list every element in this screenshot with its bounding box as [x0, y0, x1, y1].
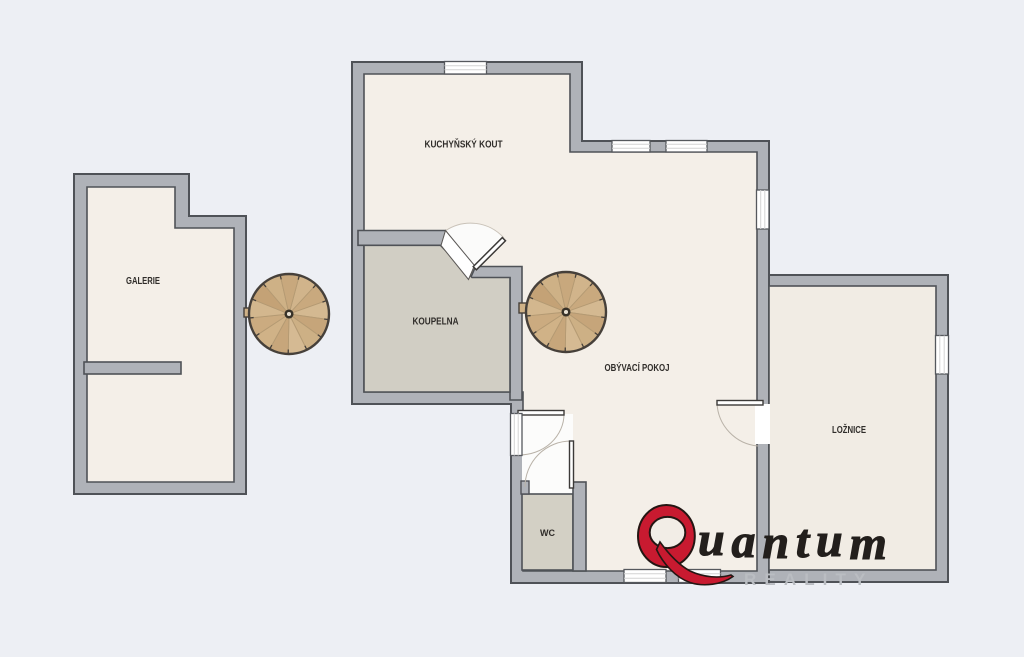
- svg-text:KUCHYŇSKÝ KOUT: KUCHYŇSKÝ KOUT: [425, 138, 503, 151]
- svg-text:REALITY: REALITY: [744, 570, 873, 589]
- svg-text:WC: WC: [540, 528, 555, 539]
- svg-text:GALERIE: GALERIE: [126, 276, 160, 287]
- svg-text:KOUPELNA: KOUPELNA: [413, 317, 459, 328]
- svg-text:LOŽNICE: LOŽNICE: [832, 423, 866, 436]
- svg-text:OBÝVACÍ POKOJ: OBÝVACÍ POKOJ: [605, 361, 670, 374]
- svg-text:uantum: uantum: [698, 513, 894, 570]
